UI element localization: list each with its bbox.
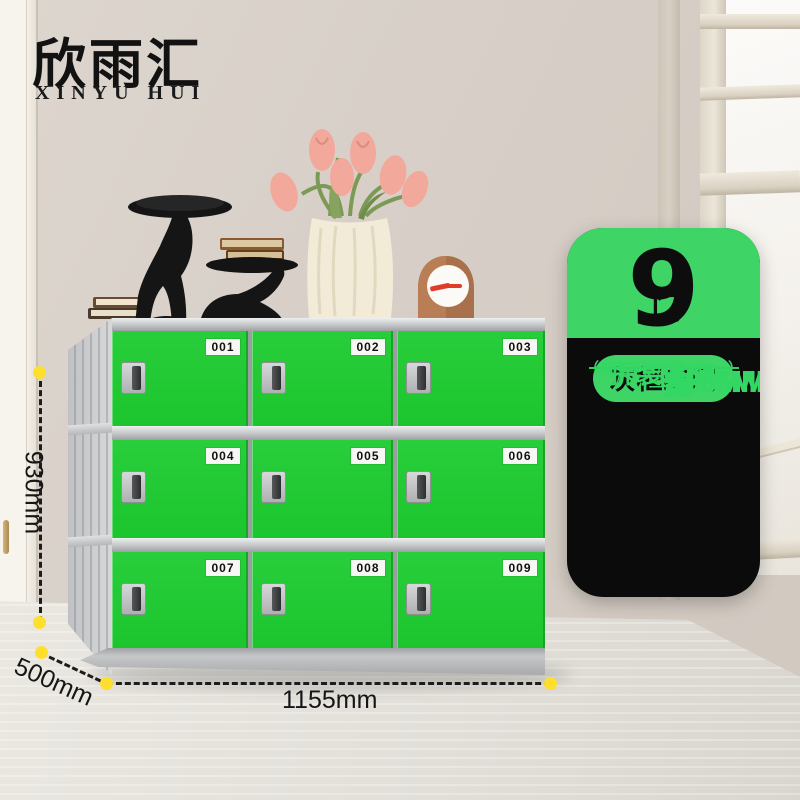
handle-slot — [132, 587, 141, 611]
brand-logo-english: XINYU HUI — [35, 82, 235, 105]
dimension-marker-dot — [35, 646, 48, 659]
door-handle — [121, 362, 146, 394]
door-number-label: 002 — [351, 339, 385, 355]
door-count-unit: 门 — [652, 284, 682, 328]
clock — [418, 256, 474, 318]
handle-slot — [272, 475, 281, 499]
tulip-flowers — [265, 129, 433, 215]
dimension-marker-dot — [544, 677, 557, 690]
width-dimension-line — [107, 682, 550, 685]
door-number-label: 001 — [206, 339, 240, 355]
locker-front: 001 002 003 004 005 006 007 008 — [112, 318, 545, 648]
handle-slot — [272, 587, 281, 611]
locker-side-panel — [68, 318, 112, 676]
spec-info-card: 9 门 灰框绿门 高: 930MM 宽: 1155MM 深: 500MM 拆装发… — [567, 228, 760, 597]
books-stack-left — [88, 297, 143, 319]
spec-panel: 灰框绿门 高: 930MM 宽: 1155MM 深: 500MM 拆装发货 （高… — [567, 338, 760, 597]
handle-slot — [272, 366, 281, 390]
width-dimension-label: 1155mm — [282, 686, 377, 715]
door-handle — [261, 362, 286, 394]
door-number-label: 003 — [503, 339, 537, 355]
door-number-label: 004 — [206, 448, 240, 464]
locker-top-rail — [112, 318, 545, 331]
locker-door: 007 — [112, 552, 248, 648]
lying-dog-sculpture — [200, 238, 298, 322]
handle-slot — [417, 366, 426, 390]
door-handle — [406, 471, 431, 503]
door-handle — [406, 362, 431, 394]
locker-door: 001 — [112, 331, 248, 426]
handle-slot — [417, 587, 426, 611]
locker-door: 005 — [252, 440, 393, 538]
window-mullion — [700, 170, 800, 195]
door-handle — [261, 583, 286, 615]
decor-scene — [80, 128, 500, 328]
door-number-label: 008 — [351, 560, 385, 576]
locker-door: 003 — [397, 331, 545, 426]
product-image: 欣雨汇 XINYU HUI — [0, 0, 800, 800]
locker-rail — [112, 426, 545, 440]
door-handle — [121, 583, 146, 615]
locker-door: 004 — [112, 440, 248, 538]
door-handle — [121, 471, 146, 503]
door-number-label: 006 — [503, 448, 537, 464]
locker-door: 006 — [397, 440, 545, 538]
height-dimension-label: 930mm — [19, 433, 48, 553]
left-door-handle — [3, 520, 9, 554]
door-number-label: 009 — [503, 560, 537, 576]
locker-door: 002 — [252, 331, 393, 426]
door-handle — [261, 471, 286, 503]
shipping-subnote: （高度不含底座60mm） — [585, 357, 743, 378]
locker-rail — [112, 538, 545, 552]
handle-slot — [132, 475, 141, 499]
door-handle — [406, 583, 431, 615]
dimension-marker-dot — [33, 366, 46, 379]
locker-door: 008 — [252, 552, 393, 648]
handle-slot — [417, 475, 426, 499]
dimension-marker-dot — [33, 616, 46, 629]
door-number-label: 005 — [351, 448, 385, 464]
handle-slot — [132, 366, 141, 390]
door-number-label: 007 — [206, 560, 240, 576]
window-mullion — [700, 14, 800, 29]
door-count-banner: 9 门 — [567, 228, 760, 338]
locker-door: 009 — [397, 552, 545, 648]
tulip-bouquet — [265, 129, 433, 318]
dimension-marker-dot — [100, 677, 113, 690]
